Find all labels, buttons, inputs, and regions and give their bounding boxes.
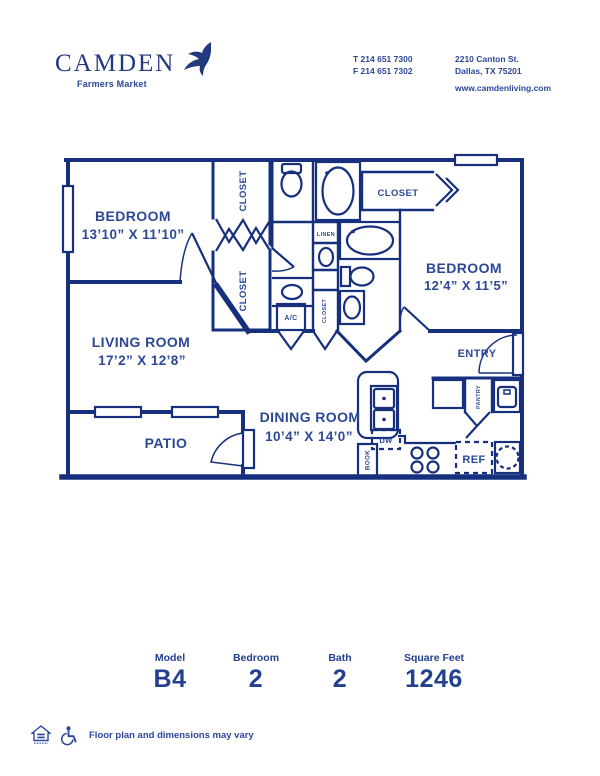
label-pantry: PANTRY [476,385,482,409]
label-dw: DW [379,436,393,445]
door-ac-closet [278,331,304,349]
label-bedroom1: BEDROOM [95,208,171,224]
label-closet-b: CLOSET [238,271,249,312]
window-bedroom1 [63,186,73,252]
label-closet-c: CLOSET [322,299,328,324]
label-linen: LINEN [317,232,335,238]
door-closet-c [313,331,337,349]
washer-button [504,390,510,394]
stat-bedroom: Bedroom 2 [233,652,279,694]
entry-door-leaf [513,333,523,375]
wheelchair-icon [58,725,78,746]
door-bathA-arc [272,267,294,271]
door-bedroom2-leaf [404,307,430,331]
window-living-2 [172,407,218,417]
stat-bedroom-value: 2 [233,665,279,694]
toilet-b-bowl [351,268,374,286]
burner-3 [412,462,423,473]
burner-4 [428,462,439,473]
patio-door-arc [211,433,243,466]
label-closet-bedroom2: CLOSET [378,188,419,199]
sink-bathA [282,285,302,299]
label-closet-a: CLOSET [238,171,249,212]
label-bedroom2-dims: 12’4” X 11’5” [424,278,508,293]
stat-model-label: Model [154,652,187,664]
window-bedroom2 [455,155,497,165]
equal-housing-icon [31,725,51,746]
label-patio: PATIO [145,435,188,451]
label-living-room: LIVING ROOM [92,334,191,350]
door-bathA-leaf [272,248,294,267]
toilet-a-bowl [282,172,302,197]
label-bedroom1-dims: 13’10” X 11’10” [82,227,185,242]
label-ref: REF [462,454,485,466]
footer: Floor plan and dimensions may vary [31,725,254,746]
stat-sqft: Square Feet 1246 [404,652,464,694]
sink-drain-2 [382,418,386,422]
wall-hall-funnel [337,331,400,361]
label-entry: ENTRY [458,348,497,360]
label-living-room-dims: 17’2” X 12’8” [98,353,186,368]
door-pantry-bifold [465,412,490,438]
tub-a-drain [325,171,329,175]
label-dining-room-dims: 10’4” X 14’0” [265,429,353,444]
patio-door-leaf [243,430,254,468]
tub-b-drain [351,230,355,234]
stat-bath-value: 2 [328,665,351,694]
burner-1 [412,448,423,459]
sink-drain-1 [382,397,386,401]
stat-bath: Bath 2 [328,652,351,694]
label-dining-room: DINING ROOM [260,409,361,425]
floorplan-drawing: BEDROOM 13’10” X 11’10” BEDROOM 12’4” X … [0,0,600,776]
water-heater [497,447,519,469]
sink-bathB [344,297,360,319]
label-book: BOOK [365,450,372,470]
vanity-bathA [272,278,313,306]
stat-model: Model B4 [154,652,187,694]
label-ac: A/C [284,315,297,322]
door-closet-bedroom2-bifold-1 [436,174,452,206]
footer-disclaimer: Floor plan and dimensions may vary [89,730,254,741]
stat-model-value: B4 [154,665,187,694]
sink-hall [319,248,333,266]
stat-bath-label: Bath [328,652,351,664]
label-bedroom2: BEDROOM [426,260,502,276]
kitchen-counter-box [433,380,463,408]
stat-bedroom-label: Bedroom [233,652,279,664]
toilet-b-tank [341,267,350,286]
window-living-1 [95,407,141,417]
stat-sqft-label: Square Feet [404,652,464,664]
stat-sqft-value: 1246 [404,665,464,694]
floorplan-flyer: { "brand": { "name": "CAMDEN", "communit… [0,0,600,776]
counter-edge [398,436,456,443]
burner-2 [428,448,439,459]
